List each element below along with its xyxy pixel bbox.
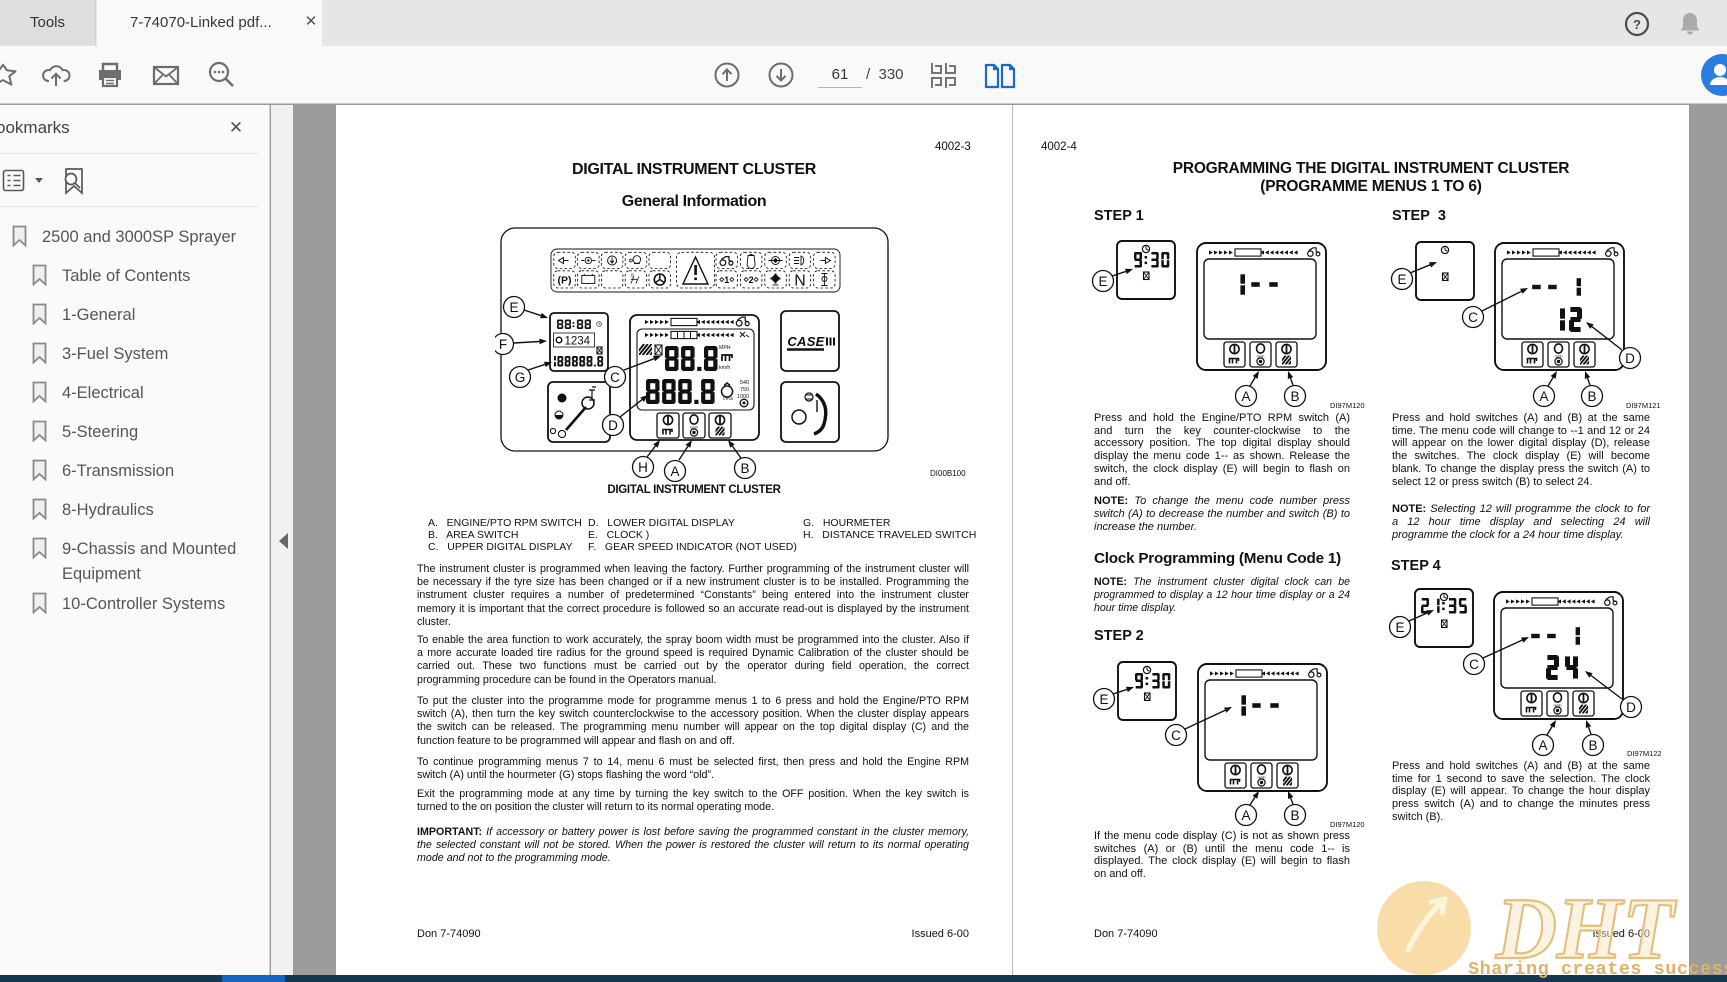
svg-text:km/h: km/h <box>719 365 730 371</box>
svg-text:N: N <box>794 273 806 290</box>
svg-text:?: ? <box>1633 17 1641 32</box>
svg-text:E: E <box>1098 274 1107 289</box>
svg-text:1234: 1234 <box>565 336 591 348</box>
svg-text:A: A <box>670 464 679 479</box>
svg-text:H: H <box>638 460 648 475</box>
svg-text:DHT: DHT <box>1495 881 1677 971</box>
svg-text:r/min: r/min <box>723 396 734 401</box>
svg-text:B: B <box>1587 389 1596 404</box>
svg-text:F: F <box>499 337 507 352</box>
svg-text:G: G <box>515 370 526 385</box>
svg-text:C: C <box>1469 657 1479 672</box>
svg-text:E: E <box>509 300 518 315</box>
svg-text:B: B <box>1290 389 1299 404</box>
svg-text:9: 9 <box>631 274 634 280</box>
svg-text:B: B <box>740 461 749 476</box>
svg-text:A: A <box>1538 738 1547 753</box>
svg-text:750: 750 <box>740 387 749 393</box>
svg-text:DI97M120: DI97M120 <box>1330 820 1365 829</box>
svg-text:E: E <box>1397 272 1406 287</box>
svg-text:D: D <box>608 418 618 433</box>
svg-text:C: C <box>610 370 620 385</box>
svg-text:B: B <box>1290 808 1299 823</box>
svg-text:2: 2 <box>749 275 754 285</box>
svg-text:MPH: MPH <box>719 345 731 351</box>
svg-text:C: C <box>1468 310 1478 325</box>
svg-text:A: A <box>1241 808 1250 823</box>
svg-text:B: B <box>1588 738 1597 753</box>
svg-text:A: A <box>1539 389 1548 404</box>
svg-text:(P): (P) <box>558 275 572 287</box>
svg-text:1: 1 <box>724 275 729 285</box>
svg-text:E: E <box>1099 692 1108 707</box>
svg-text:DI97M121: DI97M121 <box>1626 401 1661 410</box>
svg-text:DI97M122: DI97M122 <box>1627 749 1662 758</box>
svg-text:CASE: CASE <box>787 334 824 349</box>
svg-text:E: E <box>1395 620 1404 635</box>
svg-text:C: C <box>1171 728 1181 743</box>
svg-text:D: D <box>1626 700 1636 715</box>
svg-text:A: A <box>1241 389 1250 404</box>
svg-text:540: 540 <box>740 380 749 386</box>
svg-text:D: D <box>1625 351 1635 366</box>
svg-text:DI97M120: DI97M120 <box>1330 401 1365 410</box>
